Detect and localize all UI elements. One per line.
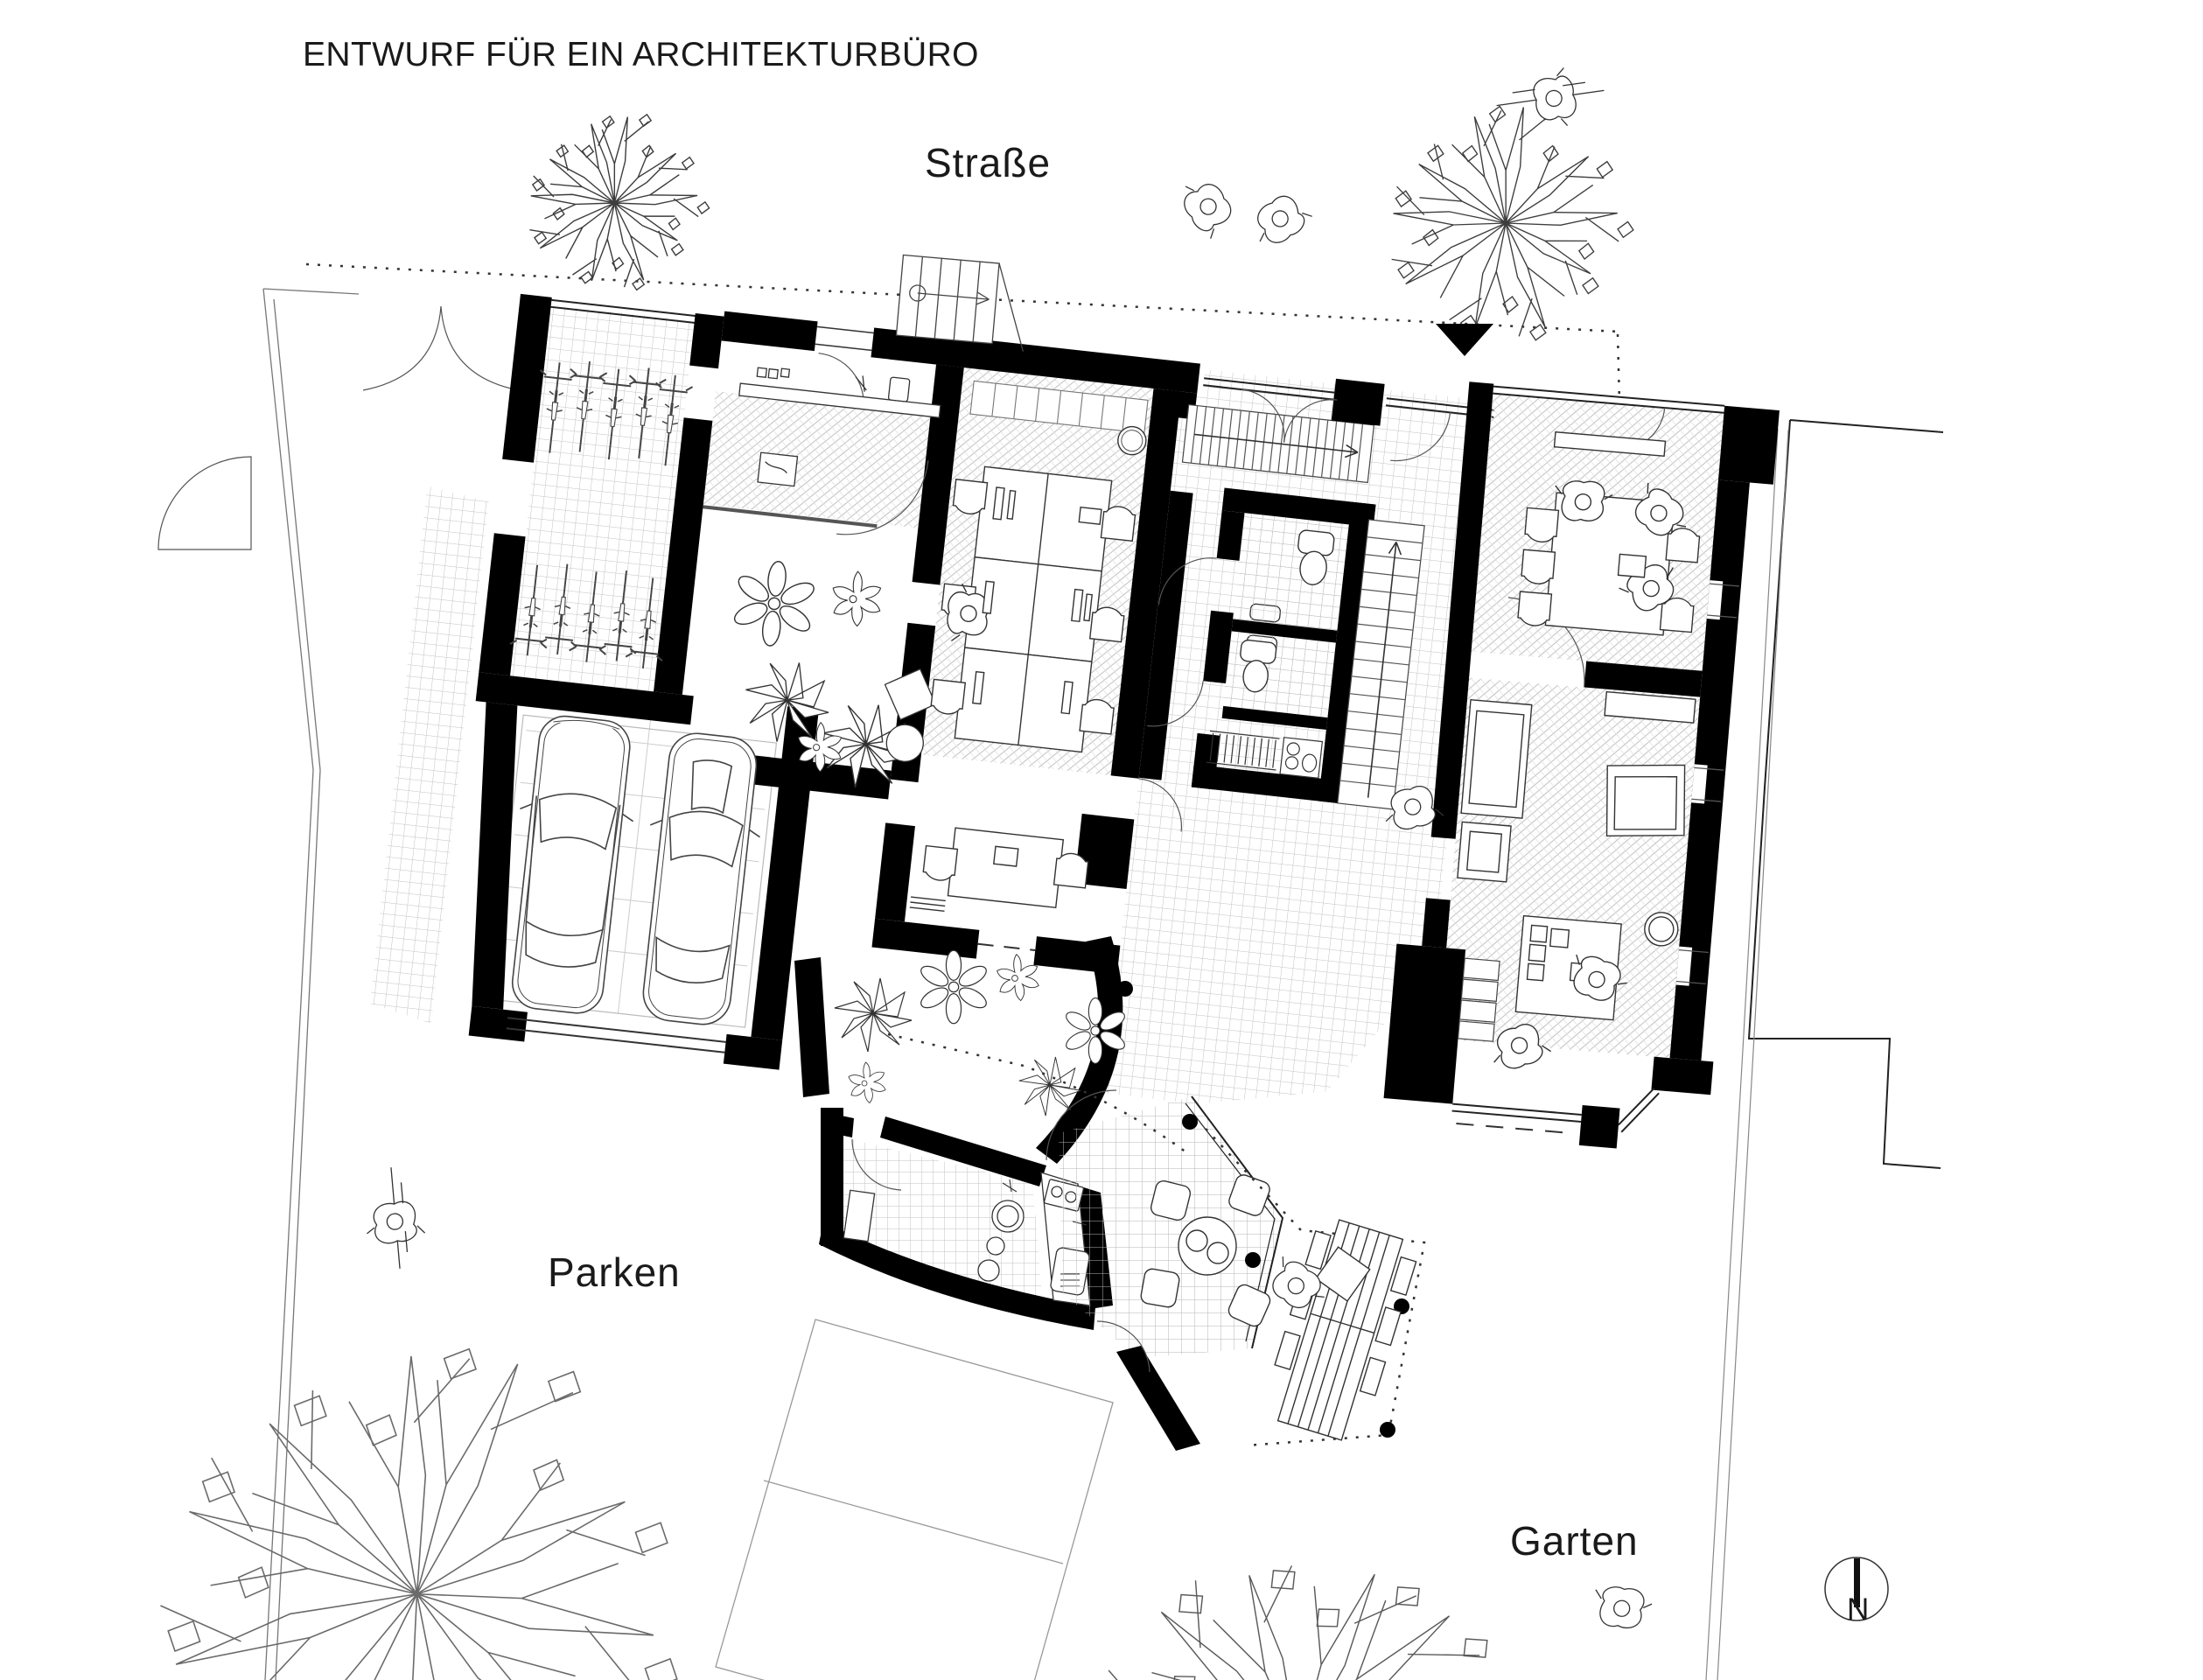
svg-text:Garten: Garten xyxy=(1510,1518,1639,1564)
svg-text:N: N xyxy=(1847,1592,1869,1627)
svg-text:Straße: Straße xyxy=(925,140,1051,185)
svg-text:Parken: Parken xyxy=(548,1249,681,1295)
svg-text:ENTWURF FÜR EIN ARCHITEKTURBÜR: ENTWURF FÜR EIN ARCHITEKTURBÜRO xyxy=(303,36,979,73)
